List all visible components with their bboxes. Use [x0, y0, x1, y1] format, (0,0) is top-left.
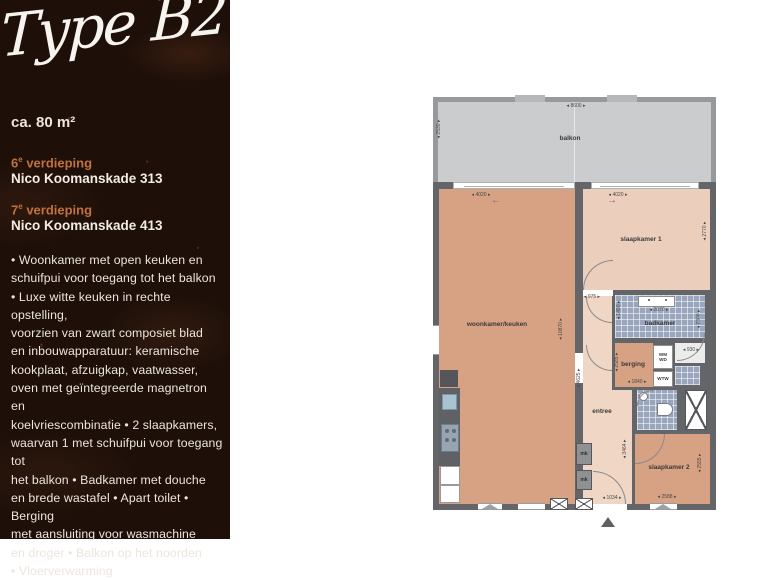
kitchen-appliance-bottom	[440, 485, 460, 503]
shaft-bottom-1	[550, 498, 568, 510]
dim-balkon-width: 8600	[556, 103, 596, 109]
dim-toilet-width: 930	[671, 347, 711, 353]
floor-sup: e	[18, 202, 22, 211]
toilet-bowl	[657, 403, 673, 416]
label-entree: entree	[572, 408, 632, 415]
area-label: ca. 80 m²	[11, 114, 75, 131]
window-vent-icon	[482, 504, 498, 509]
dim-entree-door: 1034	[592, 495, 632, 501]
wtw-label: WTW	[657, 376, 668, 382]
meter-closet-2: mk	[576, 470, 592, 490]
window-bottom-2	[518, 503, 545, 510]
stove-burner	[445, 438, 449, 442]
sliding-door-woonkamer	[453, 182, 575, 189]
label-balkon: balkon	[540, 135, 600, 142]
floorplan: WM WD WTW mk mk ← → balkon woonkamer/keu…	[433, 97, 716, 515]
shower-tile-area	[675, 366, 700, 385]
label-berging: berging	[603, 361, 663, 368]
entrance-marker-icon	[601, 517, 615, 527]
feature-list: • Woonkamer met open keuken en schuifpui…	[11, 251, 223, 580]
service-shaft	[685, 390, 707, 430]
balcony-support-tab	[515, 95, 545, 102]
front-door-gap	[593, 504, 627, 510]
type-title: Type B2	[0, 0, 227, 71]
stove-burner	[445, 429, 449, 433]
dim-badkamer-right: 2300	[696, 304, 702, 334]
window-vent-icon	[655, 504, 671, 509]
label-badkamer: badkamer	[630, 320, 690, 327]
balcony-divider	[574, 102, 575, 182]
dim-slaapkamer1-door: 4020	[598, 192, 638, 198]
dim-balkon-depth: 2530	[436, 114, 442, 144]
dim-hal-door: 975	[572, 294, 612, 300]
kitchen-tall-cabinet	[440, 370, 458, 387]
meter-closet-1: mk	[576, 443, 592, 465]
sliding-door-slaapkamer1	[591, 182, 699, 189]
stove-burner	[452, 429, 456, 433]
label-slaapkamer1: slaapkamer 1	[601, 236, 681, 243]
kitchen-appliance-top	[440, 466, 460, 485]
dim-woonkamer-length: 10870	[558, 314, 564, 344]
floor-address: Nico Koomanskade 313	[11, 171, 163, 186]
floor-entry-7: 7e verdieping Nico Koomanskade 413	[11, 202, 163, 233]
window-left-wall	[433, 325, 439, 355]
kitchen-sink	[442, 394, 457, 410]
dim-berging-width: 1840	[617, 379, 657, 385]
balcony-support-tab	[607, 95, 637, 102]
floor-address: Nico Koomanskade 413	[11, 218, 163, 233]
floor-word: verdieping	[26, 202, 92, 217]
stove-burner	[452, 438, 456, 442]
dim-berging-depth: 2585	[614, 347, 620, 377]
floor-sup: e	[18, 155, 22, 164]
dim-badkamer-width: 2070	[639, 307, 679, 313]
floor-word: verdieping	[26, 155, 92, 170]
dim-slaapkamer1-depth: 2770	[702, 216, 708, 246]
dim-woonkamer-door: 4020	[461, 192, 501, 198]
dim-badkamer-depth: 1490	[616, 295, 622, 325]
info-panel: Type B2 ca. 80 m² 6e verdieping Nico Koo…	[0, 0, 230, 539]
mk-label: mk	[580, 477, 587, 483]
floor-entry-6: 6e verdieping Nico Koomanskade 313	[11, 155, 163, 186]
mk-label: mk	[580, 451, 587, 457]
dim-entree-length: 3464	[622, 434, 628, 464]
kitchen-stove	[441, 424, 459, 452]
label-woonkamer: woonkamer/keuken	[447, 321, 547, 328]
dim-slaapkamer2-depth: 2555	[697, 448, 703, 478]
floor-number: 6e verdieping	[11, 155, 163, 170]
dim-hal-length: 4625	[576, 363, 582, 393]
dim-slaapkamer2-width: 2588	[647, 494, 687, 500]
bathroom-washbasin	[638, 296, 675, 307]
floor-number: 7e verdieping	[11, 202, 163, 217]
shaft-bottom-2	[575, 498, 593, 510]
